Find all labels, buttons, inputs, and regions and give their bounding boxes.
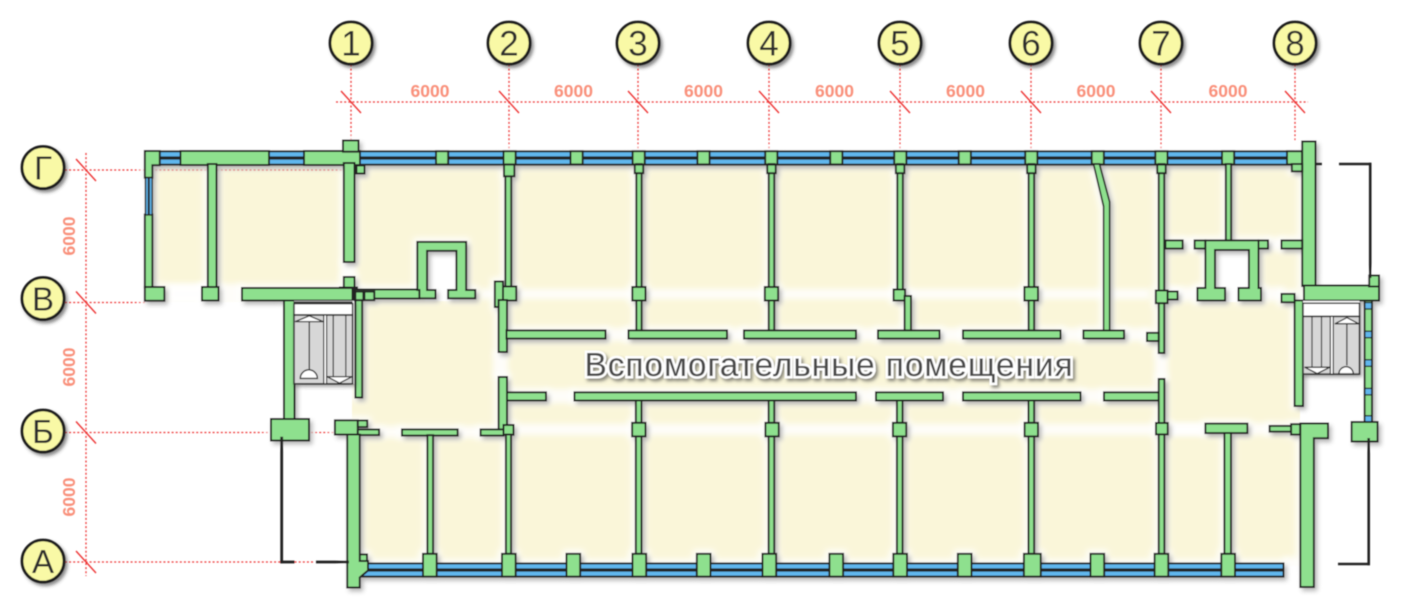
svg-text:6000: 6000	[554, 81, 593, 101]
svg-text:Б: Б	[32, 413, 54, 450]
svg-text:1: 1	[341, 25, 360, 64]
svg-text:8: 8	[1285, 25, 1304, 64]
svg-text:4: 4	[759, 25, 778, 64]
svg-text:7: 7	[1151, 25, 1170, 64]
svg-text:6000: 6000	[1077, 81, 1116, 101]
svg-text:6000: 6000	[411, 81, 450, 101]
svg-text:А: А	[32, 543, 54, 580]
svg-text:Вспомогательные помещения: Вспомогательные помещения	[584, 347, 1073, 384]
svg-text:6000: 6000	[1209, 81, 1248, 101]
svg-text:В: В	[32, 281, 54, 318]
svg-text:6000: 6000	[59, 216, 79, 255]
svg-text:Г: Г	[34, 150, 52, 187]
svg-text:6000: 6000	[946, 81, 985, 101]
svg-text:6000: 6000	[815, 81, 854, 101]
svg-text:6000: 6000	[59, 477, 79, 516]
svg-text:6000: 6000	[59, 347, 79, 386]
svg-text:6: 6	[1021, 25, 1040, 64]
svg-text:2: 2	[499, 25, 518, 64]
svg-text:5: 5	[890, 25, 909, 64]
svg-text:6000: 6000	[684, 81, 723, 101]
svg-text:3: 3	[628, 25, 647, 64]
